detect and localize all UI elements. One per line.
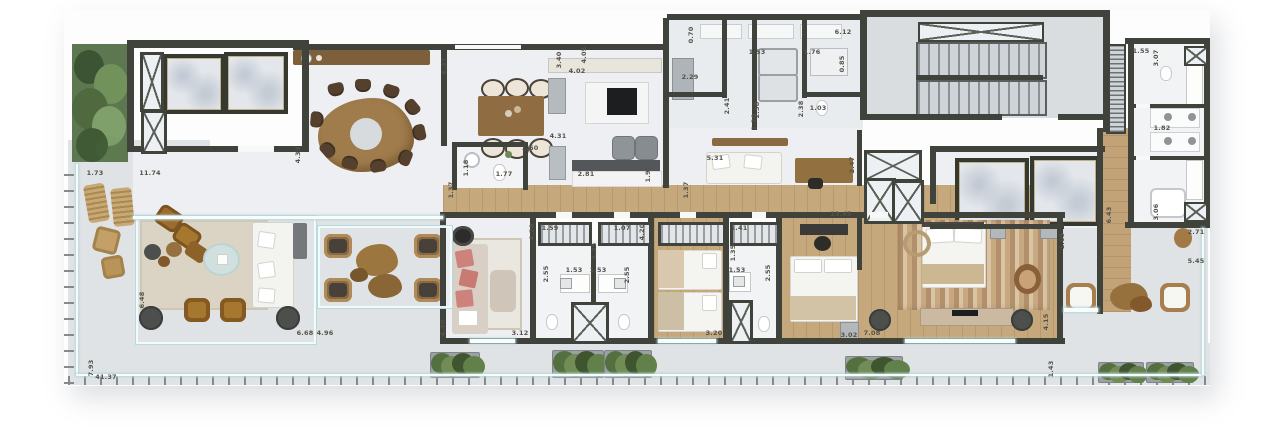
dimension-label: 1.59 [542,225,559,232]
dimension-label: 3.02 [841,332,858,339]
dimension-label: 6.43 [1106,207,1113,224]
dimension-label: 1.73 [87,170,104,177]
dimension-label: 4.96 [317,330,334,337]
dimension-label: 1.37 [448,182,455,199]
dimension-label: 1.53 [566,267,583,274]
dimension-label: 1.92 [645,166,652,183]
dimension-label: 4.20 [639,224,646,241]
dimension-label: 1.35 [591,243,598,260]
dimension-label: 4.40 [440,320,447,337]
dimension-label: 6.37 [441,58,448,75]
dimension-label: 2.38 [798,101,805,118]
dimension-label: 1.55 [1133,48,1150,55]
dimension-label: 6.12 [835,29,852,36]
dimension-label: 2.81 [578,171,595,178]
dimension-label: 1.09 [1059,233,1066,250]
dimension-label: 1.18 [463,160,470,177]
dimension-label: 1.53 [590,267,607,274]
dimension-label: 0.70 [688,27,695,44]
dimension-label: 2.55 [765,265,772,282]
dimension-label: 3.06 [1153,204,1160,221]
dimension-label: 4.02 [569,68,586,75]
dimension-label: 2.71 [1188,229,1205,236]
dimension-label: 3.20 [706,330,723,337]
dimension-label: 7.08 [864,330,881,337]
dimension-label: 4.05 [581,47,588,64]
dimension-label: 6.68 [297,330,314,337]
dimension-label: 3.40 [556,52,563,69]
dimension-label: 1.53 [729,267,746,274]
dimension-label: 2.55 [624,267,631,284]
dimension-label: 1.43 [1048,361,1055,378]
dimension-label: 1.37 [683,182,690,199]
dimension-label: 1.20 [751,114,758,131]
dimension-label: 4.20 [529,224,536,241]
dimension-label: 2.47 [849,157,856,174]
dimension-label: 1.76 [804,49,821,56]
dimension-label: 0.85 [839,56,846,73]
dimension-label: 3.12 [512,330,529,337]
dimension-label: 4.33 [295,147,302,164]
dimension-label: 11.74 [139,170,161,177]
dimension-label: 3.07 [1153,50,1160,67]
dimension-label: 2.41 [724,98,731,115]
dimension-label: 6.48 [139,292,146,309]
dimension-label: 1.82 [1154,125,1171,132]
dimension-label: 1.60 [522,145,539,152]
dimension-label: 1.07 [614,225,631,232]
dimension-label: 7.93 [88,360,95,377]
dimension-label: 2.55 [543,266,550,283]
dimension-label: 1.53 [749,49,766,56]
dimension-label: 1.35 [730,245,737,262]
floor-plan-canvas: 1.7311.744.336.373.404.054.020.706.121.5… [0,0,1280,427]
dimension-label: 5.45 [1188,258,1205,265]
dimension-label: 1.77 [496,171,513,178]
dimension-label: 4.31 [550,133,567,140]
dimension-label: 41.37 [95,374,117,381]
dimension-labels-layer: 1.7311.744.336.373.404.054.020.706.121.5… [0,0,1280,427]
dimension-label: 4.15 [1043,314,1050,331]
dimension-label: 2.29 [682,74,699,81]
dimension-label: 13.45 [830,211,852,218]
dimension-label: 5.31 [707,155,724,162]
dimension-label: 1.03 [810,105,827,112]
dimension-label: 1.41 [731,225,748,232]
